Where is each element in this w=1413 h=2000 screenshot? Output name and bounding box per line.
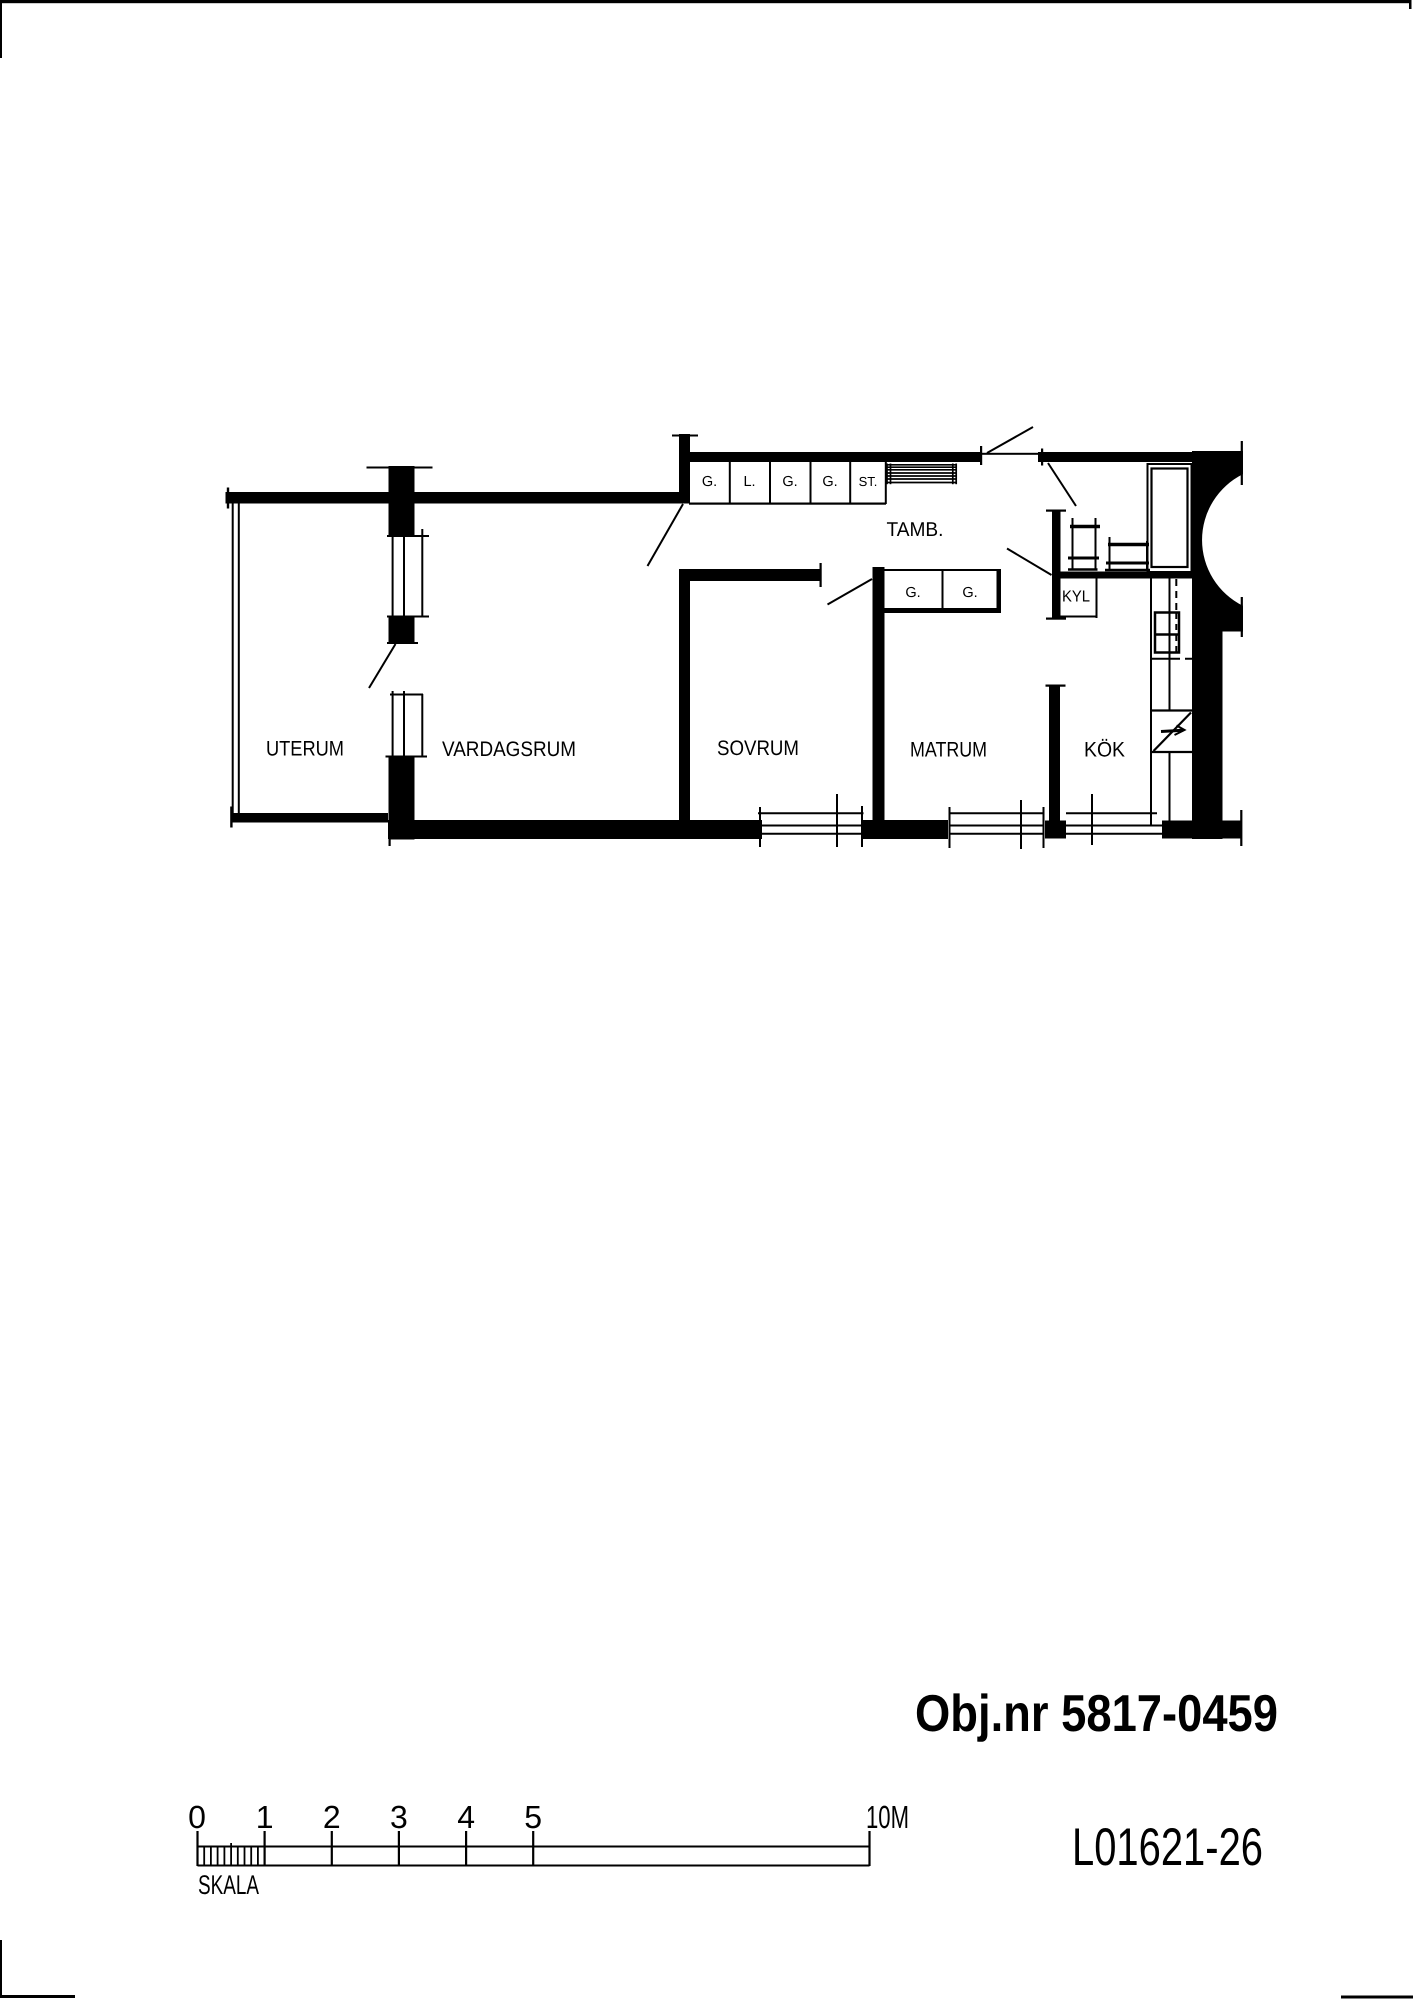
svg-text:KYL: KYL: [1062, 589, 1090, 606]
svg-text:G.: G.: [822, 474, 837, 490]
svg-text:TAMB.: TAMB.: [887, 519, 944, 541]
svg-text:G.: G.: [905, 585, 920, 601]
svg-text:Obj.nr 5817-0459: Obj.nr 5817-0459: [915, 1685, 1278, 1743]
svg-text:G.: G.: [782, 474, 797, 490]
svg-text:ST.: ST.: [859, 474, 878, 489]
svg-text:G.: G.: [962, 585, 977, 601]
svg-text:VARDAGSRUM: VARDAGSRUM: [442, 738, 576, 761]
svg-text:0: 0: [188, 1799, 206, 1835]
svg-text:L.: L.: [743, 474, 755, 490]
svg-text:SOVRUM: SOVRUM: [717, 737, 799, 760]
svg-text:L01621-26: L01621-26: [1072, 1818, 1263, 1877]
svg-text:1: 1: [256, 1799, 274, 1835]
svg-text:4: 4: [457, 1799, 475, 1835]
svg-text:UTERUM: UTERUM: [266, 738, 344, 761]
svg-text:10M: 10M: [866, 1799, 909, 1835]
svg-text:5: 5: [524, 1799, 542, 1835]
svg-text:KÖK: KÖK: [1084, 739, 1125, 762]
svg-text:SKALA: SKALA: [198, 1870, 259, 1900]
svg-text:3: 3: [390, 1799, 408, 1835]
svg-text:G.: G.: [702, 474, 717, 490]
svg-text:MATRUM: MATRUM: [910, 739, 987, 762]
svg-text:2: 2: [323, 1799, 341, 1835]
